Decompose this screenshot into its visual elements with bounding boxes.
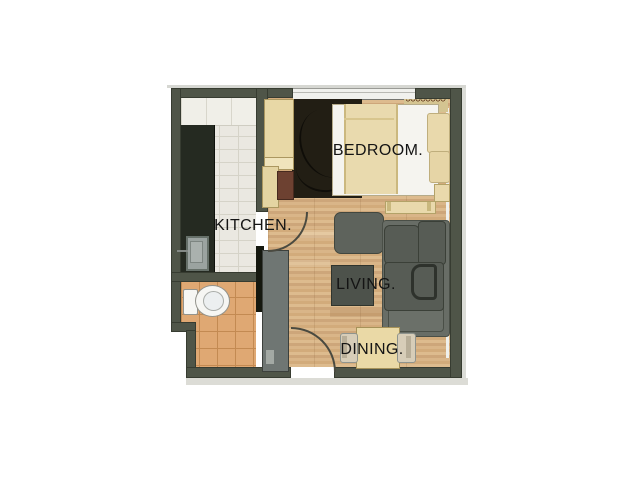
bed-blanket-fold [344,118,394,120]
toilet-bowl-inner [203,291,224,311]
dining-label: DINING. [322,342,422,358]
wall-kitchen-bathroom [171,272,263,282]
sofa-cushion [418,221,446,265]
living-rug-ottoman [334,212,384,254]
living-label: LIVING. [316,277,416,293]
faucet-icon [177,250,188,252]
plan-outer-highlight-right [462,88,466,380]
nightstand [434,184,450,202]
floor-plan-page: KITCHEN. BEDROOM. LIVING. DINING. [0,0,640,480]
wall-top-left [171,88,293,98]
bed-pillow [429,151,450,183]
window-top-mullion [293,92,415,93]
kitchen-sink-basin [190,241,203,263]
bed-pillow [427,113,450,153]
wall-right [450,88,462,378]
sofa-cushion [384,225,420,265]
bedroom-label: BEDROOM. [328,143,428,159]
wood-streak [285,260,330,267]
wardrobe-hamper [277,171,294,200]
plan-shadow-bottom [171,378,468,385]
wardrobe [264,99,294,161]
bedroom-bench-end [427,202,431,211]
kitchen-label: KITCHEN. [203,218,303,234]
hall-cabinet-detail [266,350,274,364]
bottom-left-notch-exterior [165,332,186,385]
wall-left [171,88,181,330]
bedroom-bench-end [387,202,391,211]
kitchen-top-tile-band [181,97,256,126]
